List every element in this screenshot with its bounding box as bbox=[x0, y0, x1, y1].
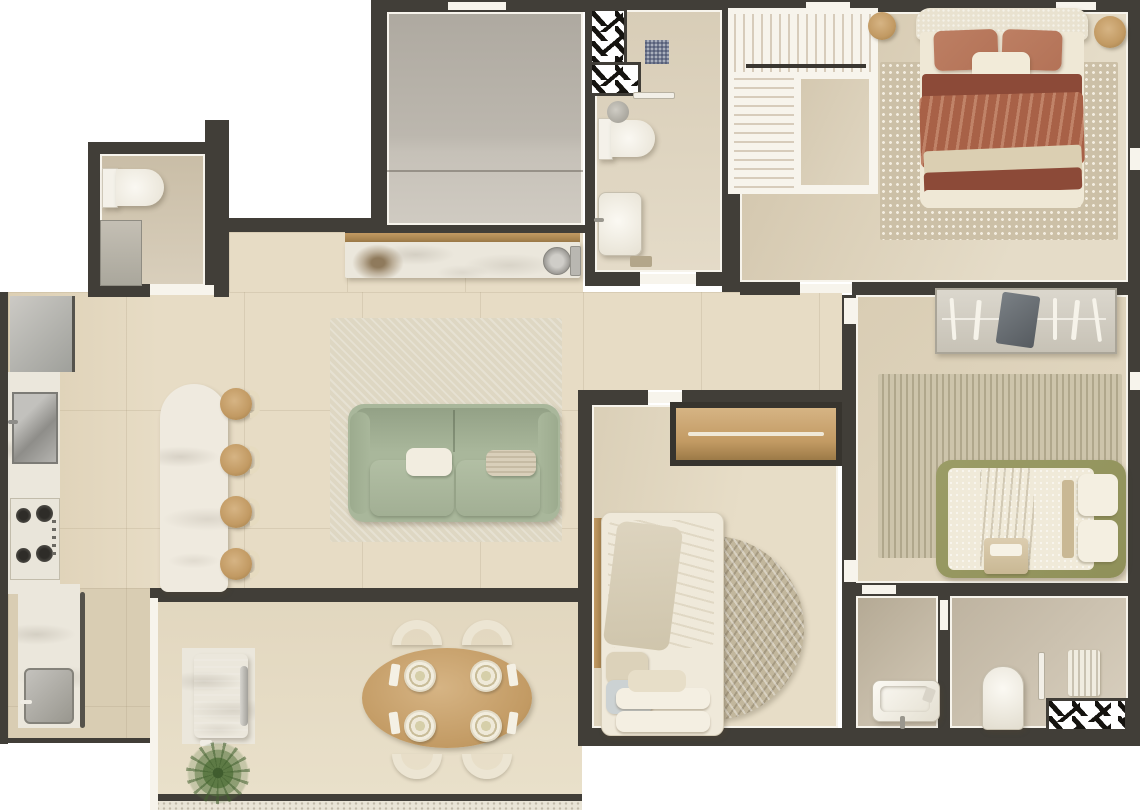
wall-masterbath-bottom-right bbox=[696, 272, 722, 286]
sofa-back-divider bbox=[453, 410, 455, 452]
toilet-2 bbox=[982, 666, 1024, 730]
single-bed-pillow-small bbox=[628, 670, 686, 692]
single-bed-pillow-2 bbox=[616, 711, 710, 732]
burner-4 bbox=[36, 545, 53, 562]
towel-bar bbox=[633, 92, 675, 99]
wall-entrybath-bottom-right bbox=[214, 284, 229, 297]
island-stool-3 bbox=[220, 496, 252, 528]
wash-basin-faucet bbox=[900, 716, 905, 729]
wall-entrybath-left bbox=[88, 142, 100, 292]
bath-stool bbox=[607, 101, 629, 123]
sofa-armrest-left bbox=[350, 412, 370, 514]
wall-kitchen-left bbox=[0, 292, 8, 744]
place-setting-4 bbox=[470, 710, 502, 742]
door-master-bedroom bbox=[800, 284, 852, 293]
dry-plant bbox=[352, 244, 404, 278]
place-setting-1 bbox=[404, 660, 436, 692]
wall-entrybath-top bbox=[88, 142, 216, 154]
toilet-master-bowl bbox=[611, 120, 655, 157]
olive-bed bbox=[936, 460, 1126, 578]
window-master-right bbox=[1130, 148, 1140, 170]
towel-bar-2 bbox=[1038, 652, 1045, 700]
wall-grayhall-bottom bbox=[345, 225, 585, 233]
door-bedroom-2-lower bbox=[844, 560, 856, 582]
wall-master-bottom-left bbox=[740, 282, 800, 295]
laundry-faucet bbox=[20, 700, 32, 704]
floor-gray-hall bbox=[387, 12, 583, 225]
buffet-sink bbox=[543, 247, 571, 275]
closet-wood-side bbox=[734, 72, 794, 188]
buffet-wood-shelf bbox=[345, 233, 580, 242]
olive-bed-pillow-2 bbox=[1078, 520, 1118, 562]
kitchen-cabinet-edge bbox=[80, 592, 85, 728]
gray-hall-shadow-line bbox=[387, 170, 583, 172]
shaft-hatch-top-lobe bbox=[589, 62, 641, 96]
plant-spikes bbox=[186, 742, 250, 804]
sofa-pillow-white bbox=[406, 448, 452, 476]
sofa-pillow-striped bbox=[486, 450, 536, 476]
kitchen-faucet bbox=[8, 420, 18, 424]
floor-corridor bbox=[583, 292, 842, 390]
wall-masterbath-bottom-left bbox=[585, 272, 640, 286]
grill-handle bbox=[240, 666, 248, 726]
island-stool-1 bbox=[220, 388, 252, 420]
towel-rack bbox=[1068, 650, 1100, 696]
wall-center-vertical bbox=[842, 295, 856, 740]
window-bedroom2-right bbox=[1130, 372, 1140, 390]
wardrobe-slot bbox=[688, 432, 824, 436]
sofa bbox=[348, 404, 560, 522]
closet-floor-notch bbox=[798, 76, 872, 188]
wall-bedroom3-top-left bbox=[592, 390, 648, 405]
door-wc-gap bbox=[862, 585, 896, 594]
bedside-stool-left bbox=[868, 12, 896, 40]
burner-3 bbox=[16, 548, 31, 563]
place-setting-3 bbox=[404, 710, 436, 742]
desk-figurine-4 bbox=[1071, 300, 1080, 340]
toilet-entry-bowl bbox=[116, 169, 164, 206]
closet-groove bbox=[746, 64, 866, 68]
desk-figurine-3 bbox=[1053, 298, 1057, 340]
door-entry-bathroom bbox=[150, 285, 214, 295]
desk-shelf bbox=[935, 288, 1117, 354]
bedside-stool-right bbox=[1094, 16, 1126, 48]
trim-balcony-left bbox=[150, 598, 158, 810]
island bbox=[160, 384, 228, 592]
olive-bed-pillow-1 bbox=[1078, 474, 1118, 516]
sofa-armrest-right bbox=[538, 412, 558, 514]
bath-mat bbox=[630, 256, 652, 267]
wall-bedroom2-bottom bbox=[856, 583, 1128, 596]
door-bedroom-2 bbox=[844, 298, 856, 324]
wall-grayhall-left bbox=[371, 0, 387, 230]
master-bed bbox=[916, 8, 1088, 208]
place-setting-2 bbox=[470, 660, 502, 692]
desk-figurine-2 bbox=[973, 300, 981, 340]
floor-plan-canvas bbox=[0, 0, 1140, 810]
vanity-entry bbox=[100, 220, 142, 286]
desk-figurine-5 bbox=[1092, 298, 1102, 342]
island-stool-4 bbox=[220, 548, 252, 580]
burner-1 bbox=[16, 508, 31, 523]
vanity-master bbox=[598, 192, 642, 256]
wall-bedroom2-right bbox=[1128, 295, 1140, 744]
shower-drain-mosaic bbox=[645, 40, 669, 64]
single-bed bbox=[594, 512, 722, 734]
cooktop-knobs bbox=[52, 520, 56, 556]
wall-kitchen-bottom-line bbox=[8, 738, 156, 743]
master-bed-foot bbox=[924, 190, 1080, 208]
shaft-hatch-bottom bbox=[1046, 698, 1128, 732]
buffet-sink-board bbox=[570, 246, 581, 276]
door-master-bathroom bbox=[640, 274, 696, 284]
olive-bed-tray-towel bbox=[990, 544, 1022, 556]
wall-bedroom3-left bbox=[578, 390, 592, 742]
island-stool-2 bbox=[220, 444, 252, 476]
vanity-master-faucet bbox=[594, 218, 604, 222]
kitchen-sink bbox=[12, 392, 58, 464]
olive-bed-runner bbox=[1062, 480, 1074, 558]
door-bathroom-2 bbox=[940, 600, 948, 630]
desk-object-dark bbox=[996, 292, 1041, 349]
laundry-sink bbox=[24, 668, 74, 724]
window-gray-hall bbox=[448, 2, 506, 10]
fridge bbox=[10, 296, 75, 372]
wall-entry-right-stub bbox=[205, 120, 229, 294]
burner-2 bbox=[36, 505, 53, 522]
